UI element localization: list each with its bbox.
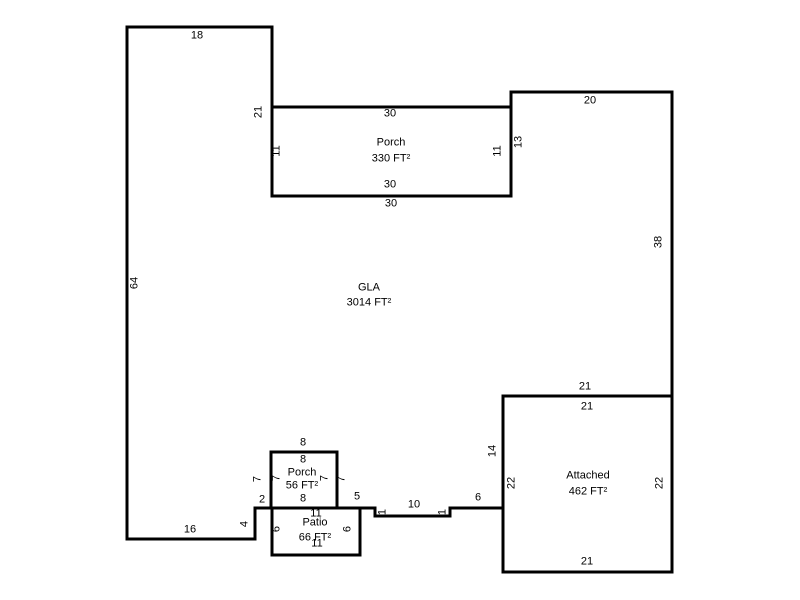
dimension-label: 16	[184, 525, 196, 536]
dimension-label: 7	[337, 476, 348, 482]
dimension-label: 8	[300, 438, 306, 449]
area-name-gla: GLA	[358, 283, 380, 294]
dimension-label: 4	[240, 521, 251, 527]
dimension-label: 14	[488, 445, 499, 457]
dimension-label: 30	[385, 199, 397, 210]
dimension-label: 18	[191, 31, 203, 42]
dimension-label: 11	[493, 145, 504, 156]
area-name-porch-56: Porch	[288, 468, 317, 479]
attached-462-outline	[503, 396, 672, 572]
area-name-porch-330: Porch	[377, 138, 406, 149]
dimension-label: 7	[320, 475, 331, 481]
dimension-label: 21	[581, 402, 593, 413]
dimension-label: 6	[272, 526, 283, 532]
dimension-label: 22	[655, 477, 666, 489]
area-size-attached-462: 462 FT²	[569, 487, 608, 498]
dimension-label: 6	[343, 526, 354, 532]
dimension-label: 11	[272, 145, 283, 156]
dimension-label: 30	[384, 180, 396, 191]
dimension-label: 8	[300, 455, 306, 466]
dimension-label: 22	[507, 477, 518, 489]
area-size-patio-66: 66 FT²	[299, 533, 331, 544]
area-name-patio-66: Patio	[302, 518, 327, 529]
dimension-label: 8	[300, 494, 306, 505]
area-size-porch-56: 56 FT²	[286, 481, 318, 492]
dimension-label: 2	[259, 495, 265, 506]
dimension-label: 6	[475, 493, 481, 504]
dimension-label: 21	[581, 557, 593, 568]
sketch-lines	[0, 0, 800, 600]
dimension-label: 64	[130, 277, 141, 289]
area-name-attached-462: Attached	[566, 471, 609, 482]
dimension-label: 1	[438, 509, 449, 515]
area-size-porch-330: 330 FT²	[372, 154, 411, 165]
dimension-label: 10	[408, 500, 420, 511]
area-size-gla: 3014 FT²	[347, 298, 392, 309]
dimension-label: 5	[354, 492, 360, 503]
dimension-label: 1	[378, 509, 389, 515]
dimension-label: 7	[272, 475, 283, 481]
dimension-label: 13	[514, 136, 525, 148]
dimension-label: 21	[579, 382, 591, 393]
dimension-label: 30	[384, 109, 396, 120]
dimension-label: 38	[654, 236, 665, 248]
dimension-label: 21	[254, 106, 265, 118]
dimension-label: 20	[584, 96, 596, 107]
floor-plan-sketch: 1821301111133030203864212114222221888777…	[0, 0, 800, 600]
dimension-label: 7	[253, 476, 264, 482]
